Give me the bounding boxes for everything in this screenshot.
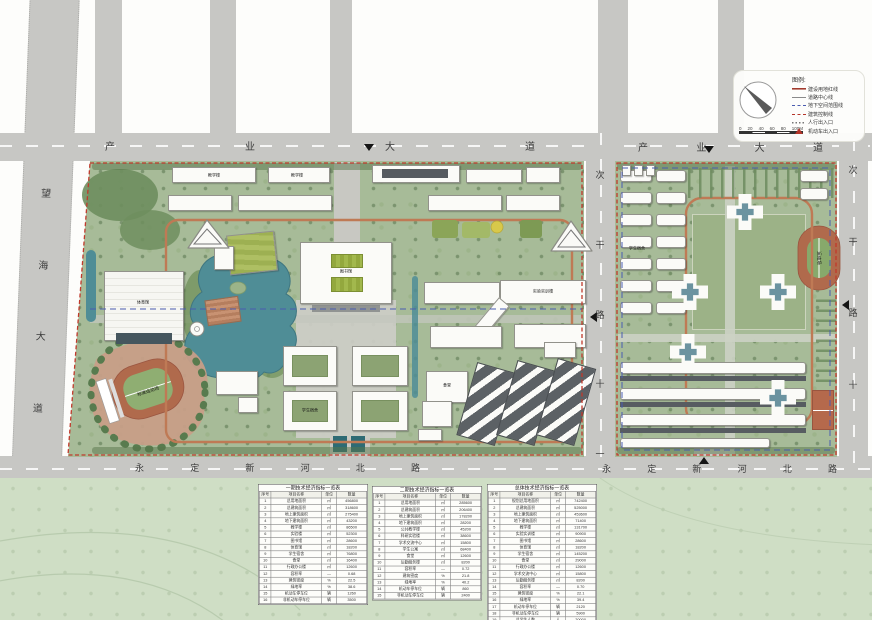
- road-label-char: 路: [411, 461, 420, 474]
- table-cell: 742400: [566, 498, 596, 505]
- table-cell: ㎡: [551, 551, 566, 558]
- table-cell: 实验实训楼: [500, 531, 550, 538]
- table-cell: 机动车停车位: [385, 586, 435, 593]
- table-cell: 学生宿舍: [500, 551, 550, 558]
- label-dorm-west: 学生宿舍: [302, 407, 318, 413]
- table-row: 9学生宿舍㎡76800: [259, 551, 366, 558]
- table-cell: 456800: [337, 498, 367, 505]
- table-cell: 1: [488, 498, 500, 505]
- legend-items: 建设用地红线道路中心线地下空间范围线建筑控制线人行出入口机动车出入口: [792, 85, 861, 135]
- table-cell: 非机动车停车位: [271, 597, 321, 604]
- legend-panel: 020406080100M 图例: 建设用地红线道路中心线地下空间范围线建筑控制…: [733, 70, 865, 142]
- indicator-table-overall: 总体技术经济指标一览表序号项目名称单位数量1规划总用地面积㎡7424002总建筑…: [487, 484, 597, 620]
- table-row: 11容积率—0.72: [373, 566, 480, 573]
- tri-red-icon: [795, 128, 803, 134]
- table-cell: 4: [259, 518, 271, 525]
- north-compass-icon: [736, 78, 780, 122]
- table-cell: 9: [488, 551, 500, 558]
- road-label-wanghai: 望海大道: [33, 185, 52, 415]
- legend-item: 建筑控制线: [792, 110, 861, 118]
- table-row: 14容积率—0.70: [488, 584, 595, 591]
- building-teaching-g: [428, 195, 502, 211]
- building-dorm-court: [352, 391, 408, 431]
- east-central-lawn: [692, 214, 806, 330]
- table-cell: 6: [488, 531, 500, 538]
- table-row: 1总用地面积㎡456800: [259, 498, 366, 505]
- building-east-small: [646, 165, 655, 176]
- building-teaching-c: [466, 169, 522, 183]
- dorm-slab-east: [656, 258, 686, 270]
- table-row: 1总用地面积㎡285600: [373, 500, 480, 507]
- building-gymnasium: [104, 271, 184, 341]
- building-dorm-court: [352, 346, 408, 386]
- road-label-char: 河: [738, 462, 747, 475]
- terraced-parking: [204, 296, 241, 326]
- table-row: 9食堂㎡12600: [373, 553, 480, 560]
- table-cell: —: [436, 566, 451, 573]
- library-roof-garden: [331, 277, 363, 292]
- table-cell: 43200: [337, 518, 367, 525]
- scale-tick: 80: [781, 126, 786, 131]
- legend-item: 机动车出入口: [792, 127, 861, 135]
- road-label-char: 定: [647, 462, 656, 475]
- table-row: 4地下建筑面积㎡43200: [259, 518, 366, 525]
- dash-blue-icon: [792, 103, 806, 109]
- table-cell: 76800: [337, 551, 367, 558]
- table-cell: 9: [373, 553, 385, 560]
- building-logistics: [216, 371, 258, 395]
- legend-item: 地下空间范围线: [792, 102, 861, 110]
- road-label-char: 十: [595, 377, 604, 390]
- dorm-slab-east: [800, 170, 828, 182]
- legend-item-label: 人行出入口: [808, 119, 833, 126]
- gym-glass-front: [116, 333, 172, 344]
- table-row: 14机动车停车位辆860: [373, 586, 480, 593]
- table-cell: ㎡: [436, 533, 451, 540]
- road-label-char: 永: [602, 462, 611, 475]
- table-cell: 2400: [451, 592, 481, 599]
- tennis-court: [812, 390, 834, 430]
- road-label-char: 干: [848, 235, 857, 248]
- tower-core: [769, 283, 786, 300]
- table-cell: %: [322, 584, 337, 591]
- table-row: 4地下建筑面积㎡28200: [373, 520, 480, 527]
- table-cell: 辆: [436, 586, 451, 593]
- table-cell: 非机动车停车位: [385, 592, 435, 599]
- table-cell: 总用地面积: [271, 498, 321, 505]
- table-cell: 食堂: [385, 553, 435, 560]
- dorm-slab-east: [620, 280, 652, 292]
- indicator-table-phase2: 二期技术经济指标一览表序号项目名称单位数量1总用地面积㎡2856002总建筑面积…: [372, 486, 482, 600]
- table-cell: 科研实验楼: [385, 533, 435, 540]
- library-canopy: [312, 305, 380, 312]
- table-cell: 规划总用地面积: [500, 498, 550, 505]
- building-teaching-e: [168, 195, 232, 211]
- label-track-east: 运动场: [816, 251, 823, 265]
- road-label-char: 道: [33, 399, 44, 414]
- table-cell: 地下建筑面积: [271, 518, 321, 525]
- dorm-slab-east: [620, 214, 652, 226]
- dorm-slab-east: [656, 236, 686, 248]
- building-east-small: [634, 165, 643, 176]
- table-cell: 9: [259, 551, 271, 558]
- table-cell: 285600: [451, 500, 481, 507]
- building-lab-slab: [430, 326, 502, 348]
- tree-belt: [92, 447, 582, 454]
- road-label-secondary-ten: 次干路十: [846, 163, 860, 391]
- table-cell: ㎡: [436, 500, 451, 507]
- building-lab-annex: [544, 342, 576, 358]
- table-cell: 38.6: [337, 584, 367, 591]
- table-cell: 0.72: [451, 566, 481, 573]
- table-cell: 14: [373, 586, 385, 593]
- building-east-small: [622, 165, 631, 176]
- dorm-slab-east-long: [620, 438, 770, 448]
- building-teaching-f: [238, 195, 332, 211]
- table-cell: 绿地率: [271, 584, 321, 591]
- dorm-slab-east: [656, 170, 686, 182]
- table-row: 1规划总用地面积㎡742400: [488, 498, 595, 505]
- table-cell: 52300: [337, 531, 367, 538]
- library-roof-garden: [331, 254, 363, 268]
- roof-deck: [382, 169, 448, 178]
- tree-belt: [617, 447, 835, 454]
- table-row: 14绿地率%38.6: [259, 584, 366, 591]
- road-label-char: 新: [245, 461, 254, 474]
- table-cell: ㎡: [322, 531, 337, 538]
- tower-core: [681, 283, 698, 300]
- indicator-table: 序号项目名称单位数量1规划总用地面积㎡7424002总建筑面积㎡5250003地…: [488, 491, 596, 620]
- parking-strip: [620, 428, 806, 433]
- table-cell: 16: [259, 597, 271, 604]
- road-label-char: 北: [356, 461, 365, 474]
- road-label-char: 一: [595, 447, 604, 460]
- table-cell: ㎡: [436, 553, 451, 560]
- table-cell: ㎡: [322, 551, 337, 558]
- table-cell: 4: [373, 520, 385, 527]
- table-row: 16非机动车停车位辆3500: [259, 597, 366, 604]
- road-label-chanye-west: 产业大道: [105, 138, 535, 153]
- road-label-char: 产: [638, 139, 648, 154]
- dash-red-icon: [792, 111, 806, 117]
- indicator-table: 序号项目名称单位数量1总用地面积㎡4568002总建筑面积㎡3186003地上建…: [259, 491, 367, 604]
- dorm-slab-east: [800, 188, 828, 200]
- legend-item-label: 建筑控制线: [808, 111, 833, 118]
- road-wanghai-avenue: 望海大道: [11, 0, 80, 496]
- table-cell: 38600: [451, 533, 481, 540]
- table-cell: 学生宿舍: [271, 551, 321, 558]
- table-cell: 90900: [566, 531, 596, 538]
- table-cell: 地下建筑面积: [500, 518, 550, 525]
- table-row: 6实验实训楼㎡90900: [488, 531, 595, 538]
- campus-master-plan: 望海大道: [0, 0, 872, 620]
- scale-tick: 60: [770, 126, 775, 131]
- table-row: 6科研实验楼㎡38600: [373, 533, 480, 540]
- tower-core: [679, 343, 696, 360]
- building-logistics-annex: [238, 397, 258, 413]
- legend-item: 建设用地红线: [792, 85, 861, 93]
- legend-item-label: 道路中心线: [808, 94, 833, 101]
- table-cell: 145200: [566, 551, 596, 558]
- road-label-char: 望: [41, 185, 52, 200]
- table-cell: 1: [373, 500, 385, 507]
- table-cell: 实验楼: [271, 531, 321, 538]
- table-cell: ㎡: [551, 518, 566, 525]
- table-cell: 容积率: [500, 584, 550, 591]
- table-row: 4地下建筑面积㎡71400: [488, 518, 595, 525]
- label-canteen: 食堂: [443, 382, 451, 388]
- road-label-char: 新: [692, 462, 701, 475]
- table-cell: —: [551, 584, 566, 591]
- label-dorm-east: 学生宿舍: [629, 245, 645, 251]
- table-cell: 28200: [451, 520, 481, 527]
- scale-tick: 40: [759, 126, 764, 131]
- road-label-char: 次: [848, 163, 857, 176]
- road-label-secondary-eleven: 次干路十一: [593, 168, 607, 460]
- building-canteen-wing: [422, 401, 452, 427]
- table-cell: 14: [488, 584, 500, 591]
- table-cell: 12600: [451, 553, 481, 560]
- table-cell: 辆: [436, 592, 451, 599]
- road-label-char: 海: [38, 256, 49, 271]
- legend-item-label: 地下空间范围线: [808, 102, 843, 109]
- road-label-char: 河: [301, 461, 310, 474]
- table-cell: 0.70: [566, 584, 596, 591]
- city-road: [210, 0, 236, 134]
- table-cell: ㎡: [551, 498, 566, 505]
- table-cell: 容积率: [385, 566, 435, 573]
- table-row: 6实验楼㎡52300: [259, 531, 366, 538]
- dorm-slab-east: [620, 258, 652, 270]
- label-teaching-a: 教学楼: [208, 172, 220, 178]
- scale-tick: 0: [739, 126, 742, 131]
- road-label-char: 永: [135, 461, 144, 474]
- road-label-char: 大: [385, 138, 395, 153]
- table-cell: 6: [259, 531, 271, 538]
- dorm-slab-east: [620, 192, 652, 204]
- table-cell: 14: [259, 584, 271, 591]
- road-label-char: 路: [848, 306, 857, 319]
- road-label-char: 路: [595, 308, 604, 321]
- table-cell: 71400: [566, 518, 596, 525]
- road-label-yongding-east: 永定新河北路: [602, 462, 837, 475]
- label-lab: 实验实训楼: [533, 288, 553, 294]
- road-label-char: 业: [245, 138, 255, 153]
- road-label-char: 次: [595, 168, 604, 181]
- building-teaching-h: [506, 195, 560, 211]
- road-label-char: 道: [525, 138, 535, 153]
- table-cell: 辆: [322, 597, 337, 604]
- building-lab-slab: [424, 282, 500, 304]
- dorm-slab-east-long: [620, 362, 806, 374]
- legend-title: 图例:: [792, 75, 861, 84]
- legend-item-label: 机动车出入口: [808, 128, 838, 135]
- label-gym: 体育馆: [137, 299, 149, 305]
- city-road: [330, 0, 352, 134]
- road-label-char: 定: [190, 461, 199, 474]
- road-label-char: 业: [696, 139, 706, 154]
- table-cell: 1: [259, 498, 271, 505]
- solid-gray-icon: [792, 95, 806, 101]
- indicator-table: 序号项目名称单位数量1总用地面积㎡2856002总建筑面积㎡2064003地上建…: [373, 493, 481, 599]
- table-cell: 地下建筑面积: [385, 520, 435, 527]
- table-cell: 11: [373, 566, 385, 573]
- table-cell: 15: [373, 592, 385, 599]
- hedge-rows: [816, 298, 836, 382]
- solid-red-icon: [792, 86, 806, 92]
- legend-item: 人行出入口: [792, 119, 861, 127]
- table-cell: 总用地面积: [385, 500, 435, 507]
- legend-item: 道路中心线: [792, 93, 861, 101]
- table-cell: 860: [451, 586, 481, 593]
- road-label-char: 大: [35, 328, 46, 343]
- table-cell: 6: [373, 533, 385, 540]
- dorm-slab-east: [620, 302, 652, 314]
- indicator-table-phase1: 一期技术经济指标一览表序号项目名称单位数量1总用地面积㎡4568002总建筑面积…: [258, 484, 368, 605]
- road-label-yongding-west: 永定新河北路: [135, 461, 420, 474]
- road-label-char: 干: [595, 238, 604, 251]
- city-road: [598, 0, 628, 134]
- tower-core: [769, 389, 786, 406]
- table-cell: ㎡: [322, 518, 337, 525]
- dorm-slab-east: [656, 192, 686, 204]
- dorm-slab-east: [656, 302, 686, 314]
- table-cell: ㎡: [322, 498, 337, 505]
- road-label-char: 北: [783, 462, 792, 475]
- building-dorm-court: [283, 346, 337, 386]
- table-cell: 3500: [337, 597, 367, 604]
- legend-item-label: 建设用地红线: [808, 86, 838, 93]
- table-row: 15非机动车停车位辆2400: [373, 592, 480, 599]
- legend-list-column: 图例: 建设用地红线道路中心线地下空间范围线建筑控制线人行出入口机动车出入口: [792, 75, 861, 135]
- table-row: 9学生宿舍㎡145200: [488, 551, 595, 558]
- building-teaching-d: [526, 167, 560, 183]
- building-green-roof-wing: [214, 246, 234, 270]
- scale-tick: 20: [748, 126, 753, 131]
- city-road: [95, 0, 122, 134]
- road-label-char: 十: [848, 378, 857, 391]
- table-cell: ㎡: [551, 531, 566, 538]
- tower-core: [736, 203, 753, 220]
- label-library: 图书馆: [340, 268, 352, 274]
- building-service-small: [418, 429, 442, 441]
- table-cell: ㎡: [436, 520, 451, 527]
- dorm-slab-east: [656, 214, 686, 226]
- label-teaching-b: 教学楼: [291, 172, 303, 178]
- table-cell: 4: [488, 518, 500, 525]
- dot-gray-icon: [792, 120, 806, 126]
- road-label-char: 产: [105, 138, 115, 153]
- road-label-char: 路: [828, 462, 837, 475]
